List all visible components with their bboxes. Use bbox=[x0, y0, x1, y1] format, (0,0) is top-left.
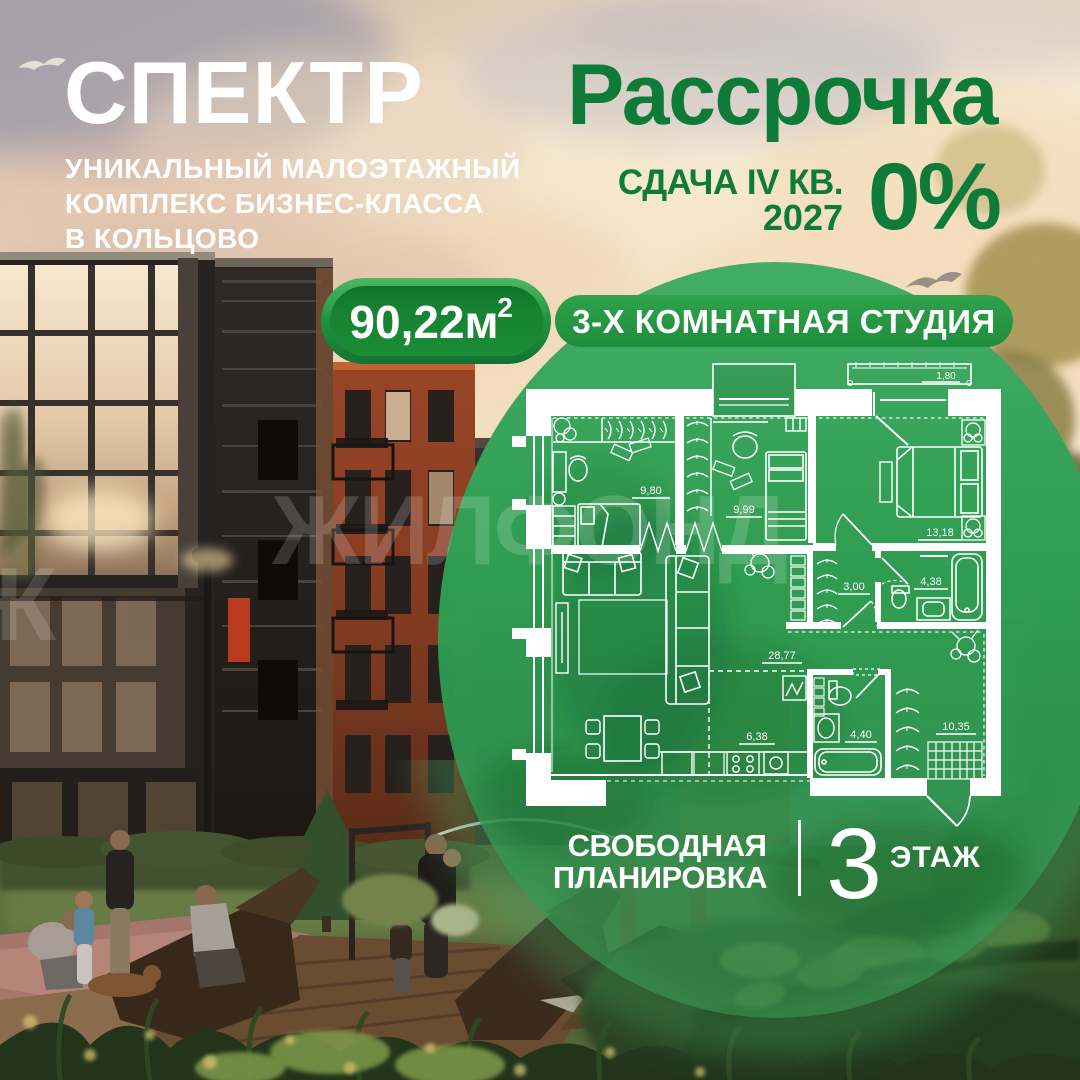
svg-text:0%: 0% bbox=[868, 144, 1000, 250]
svg-text:10,35: 10,35 bbox=[942, 721, 970, 733]
svg-text:4,38: 4,38 bbox=[920, 576, 941, 588]
svg-text:13,18: 13,18 bbox=[926, 527, 954, 539]
svg-text:2: 2 bbox=[497, 292, 513, 323]
svg-text:3: 3 bbox=[826, 808, 882, 920]
svg-text:ЖИЛФОНД: ЖИЛФОНД bbox=[271, 475, 787, 585]
svg-text:1,80: 1,80 bbox=[936, 371, 956, 382]
svg-text:4,40: 4,40 bbox=[850, 729, 871, 741]
svg-text:СПЕКТР: СПЕКТР bbox=[64, 43, 424, 142]
svg-text:90,22м: 90,22м bbox=[349, 296, 498, 348]
svg-text:28,77: 28,77 bbox=[768, 650, 796, 662]
svg-text:3,00: 3,00 bbox=[843, 581, 864, 593]
svg-text:Рассрочка: Рассрочка bbox=[567, 47, 1000, 143]
svg-text:УНИКАЛЬНЫЙ МАЛОЭТАЖНЫЙ: УНИКАЛЬНЫЙ МАЛОЭТАЖНЫЙ bbox=[65, 152, 521, 184]
svg-text:Ж: Ж bbox=[0, 547, 57, 663]
svg-text:В КОЛЬЦОВО: В КОЛЬЦОВО bbox=[65, 223, 259, 254]
svg-text:ЭТАЖ: ЭТАЖ bbox=[890, 841, 981, 874]
svg-text:СВОБОДНАЯ: СВОБОДНАЯ bbox=[568, 828, 767, 863]
svg-text:КОМПЛЕКС БИЗНЕС-КЛАССА: КОМПЛЕКС БИЗНЕС-КЛАССА bbox=[65, 188, 484, 219]
svg-text:ПЛАНИРОВКА: ПЛАНИРОВКА bbox=[553, 860, 767, 895]
svg-text:2027: 2027 bbox=[763, 197, 843, 238]
svg-text:6,38: 6,38 bbox=[746, 731, 767, 743]
svg-text:3-Х КОМНАТНАЯ СТУДИЯ: 3-Х КОМНАТНАЯ СТУДИЯ bbox=[572, 303, 996, 340]
